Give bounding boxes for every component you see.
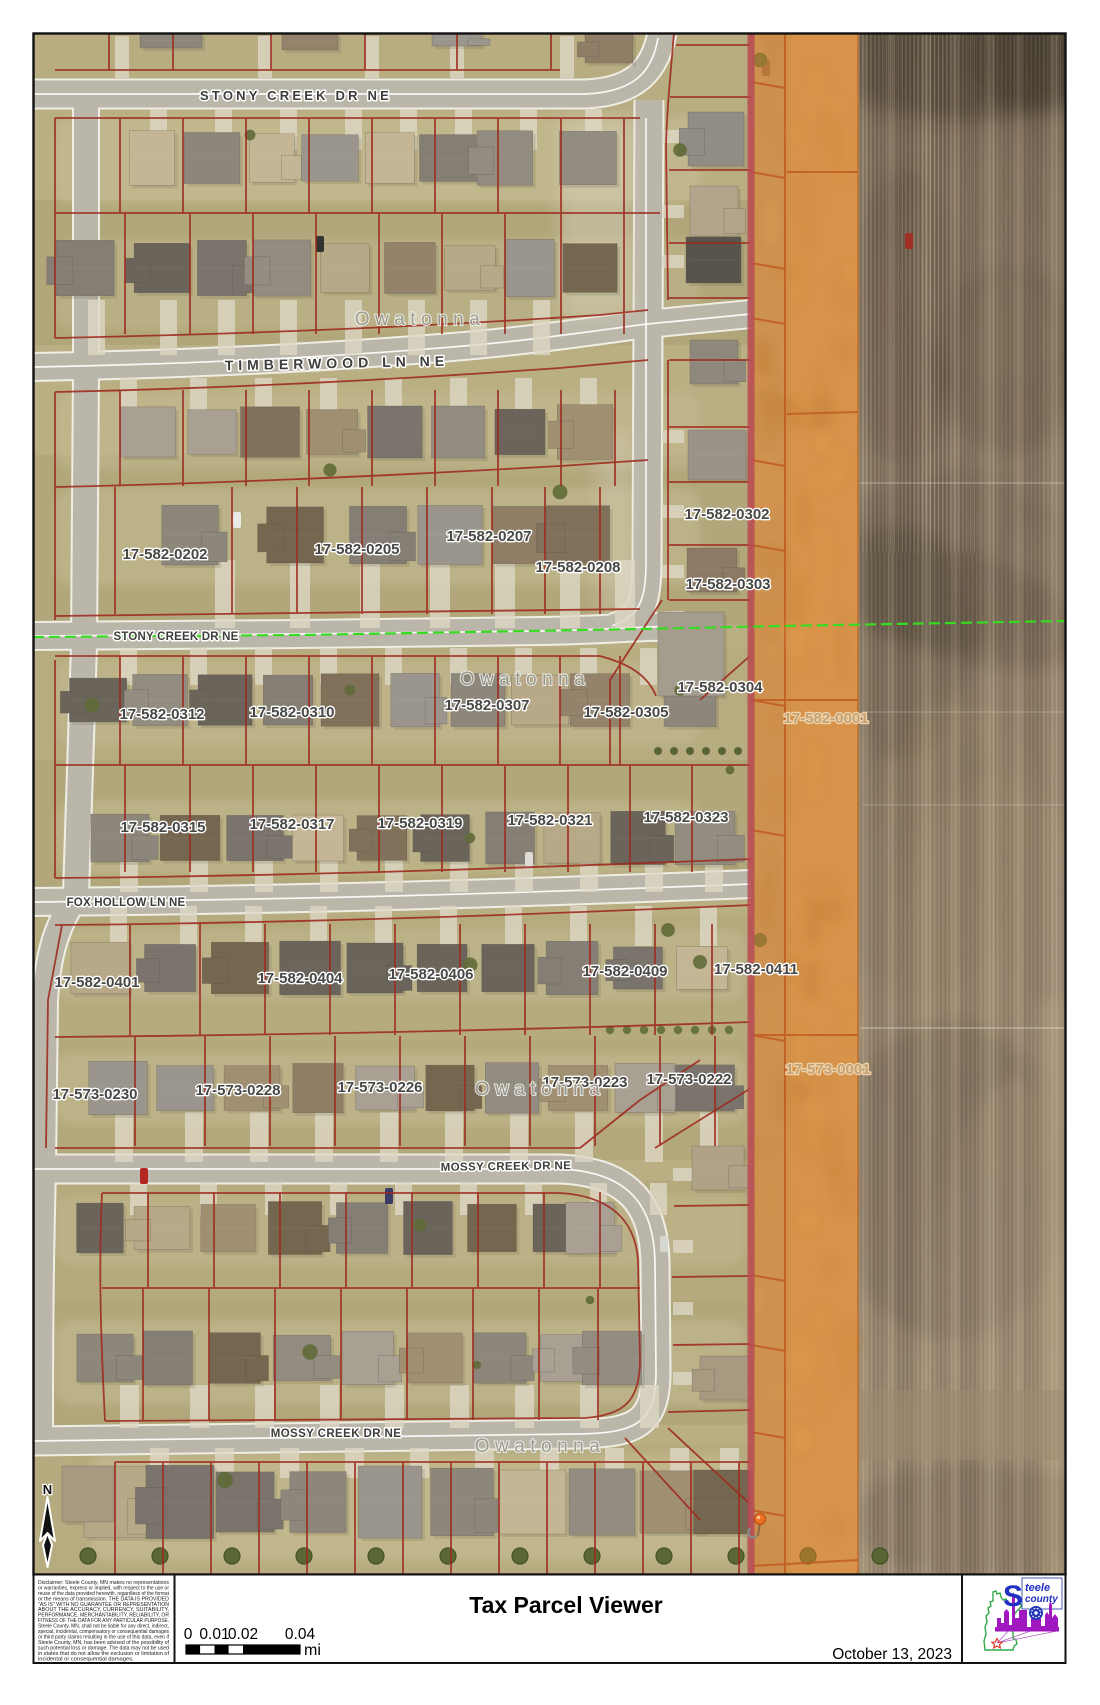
svg-text:FOX HOLLOW LN NE: FOX HOLLOW LN NE xyxy=(67,897,186,909)
svg-text:October 13, 2023: October 13, 2023 xyxy=(832,1646,952,1663)
svg-text:17-582-0001: 17-582-0001 xyxy=(783,710,868,727)
svg-text:17-582-0315: 17-582-0315 xyxy=(120,819,205,836)
svg-text:Owatonna: Owatonna xyxy=(475,1436,606,1457)
svg-text:17-582-0312: 17-582-0312 xyxy=(119,706,204,723)
svg-text:17-582-0208: 17-582-0208 xyxy=(535,559,620,576)
svg-text:incidental or consequential da: incidental or consequential damages. xyxy=(38,1656,134,1662)
svg-text:Owatonna: Owatonna xyxy=(355,309,486,330)
svg-text:17-573-0230: 17-573-0230 xyxy=(52,1086,137,1103)
svg-text:17-582-0207: 17-582-0207 xyxy=(446,528,531,545)
svg-text:17-582-0323: 17-582-0323 xyxy=(643,809,728,826)
svg-text:17-582-0317: 17-582-0317 xyxy=(249,816,334,833)
svg-text:0.04: 0.04 xyxy=(285,1626,316,1643)
svg-text:STONY CREEK DR NE: STONY CREEK DR NE xyxy=(113,631,238,643)
svg-text:MOSSY CREEK DR NE: MOSSY CREEK DR NE xyxy=(271,1428,402,1440)
svg-text:S: S xyxy=(1003,1580,1023,1613)
svg-text:17-573-0001: 17-573-0001 xyxy=(785,1061,870,1078)
svg-text:17-582-0205: 17-582-0205 xyxy=(314,541,399,558)
svg-text:17-582-0305: 17-582-0305 xyxy=(583,704,668,721)
svg-text:county: county xyxy=(1025,1594,1058,1605)
svg-text:Owatonna: Owatonna xyxy=(475,1079,606,1100)
svg-text:N: N xyxy=(43,1482,52,1497)
svg-text:17-582-0321: 17-582-0321 xyxy=(507,812,592,829)
svg-text:17-582-0310: 17-582-0310 xyxy=(249,704,334,721)
svg-text:17-582-0401: 17-582-0401 xyxy=(54,974,139,991)
svg-text:17-582-0409: 17-582-0409 xyxy=(582,963,667,980)
svg-text:17-582-0404: 17-582-0404 xyxy=(257,970,343,987)
svg-text:teele: teele xyxy=(1025,1582,1050,1594)
svg-text:17-582-0406: 17-582-0406 xyxy=(388,966,473,983)
svg-text:17-573-0226: 17-573-0226 xyxy=(337,1079,422,1096)
svg-text:17-573-0222: 17-573-0222 xyxy=(646,1071,731,1088)
svg-text:mi: mi xyxy=(304,1642,321,1659)
svg-text:MOSSY CREEK DR NE: MOSSY CREEK DR NE xyxy=(441,1160,572,1174)
svg-text:Tax Parcel Viewer: Tax Parcel Viewer xyxy=(469,1592,663,1618)
svg-text:17-582-0411: 17-582-0411 xyxy=(714,961,798,978)
svg-text:17-582-0307: 17-582-0307 xyxy=(444,697,529,714)
svg-text:0.02: 0.02 xyxy=(228,1626,258,1643)
svg-text:STONY CREEK DR NE: STONY CREEK DR NE xyxy=(200,88,392,103)
svg-text:Owatonna: Owatonna xyxy=(460,669,591,690)
svg-text:0.01: 0.01 xyxy=(199,1626,229,1643)
svg-text:17-582-0304: 17-582-0304 xyxy=(677,679,763,696)
svg-text:17-582-0319: 17-582-0319 xyxy=(377,815,462,832)
svg-text:17-582-0302: 17-582-0302 xyxy=(684,506,769,523)
svg-text:17-582-0303: 17-582-0303 xyxy=(685,576,770,593)
svg-text:17-573-0228: 17-573-0228 xyxy=(195,1082,280,1099)
svg-text:0: 0 xyxy=(184,1626,193,1643)
svg-text:17-582-0202: 17-582-0202 xyxy=(122,546,207,563)
